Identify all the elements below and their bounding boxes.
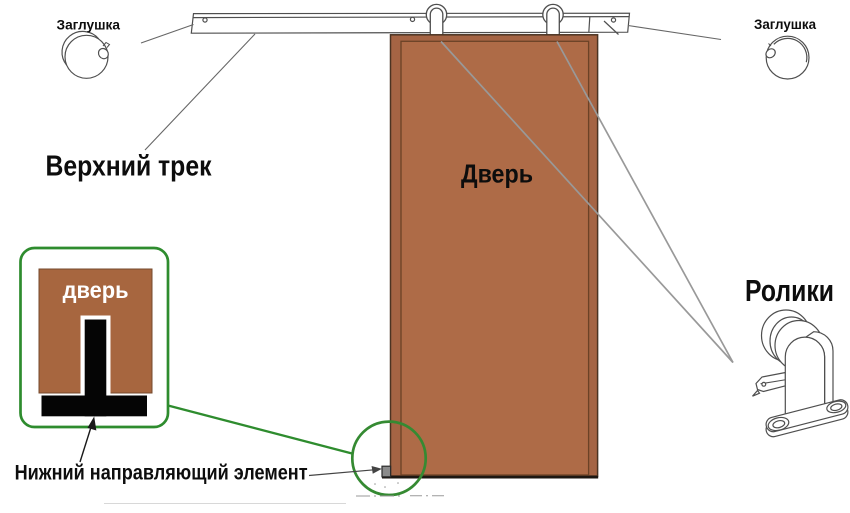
svg-text:Заглушка: Заглушка bbox=[754, 16, 816, 32]
svg-text:Верхний трек: Верхний трек bbox=[46, 151, 212, 183]
svg-text:Заглушка: Заглушка bbox=[57, 17, 121, 33]
svg-text:Нижний направляющий элемент: Нижний направляющий элемент bbox=[15, 462, 308, 485]
svg-text:дверь: дверь bbox=[63, 277, 129, 303]
svg-text:Ролики: Ролики bbox=[745, 273, 834, 308]
svg-text:Дверь: Дверь bbox=[461, 159, 533, 189]
